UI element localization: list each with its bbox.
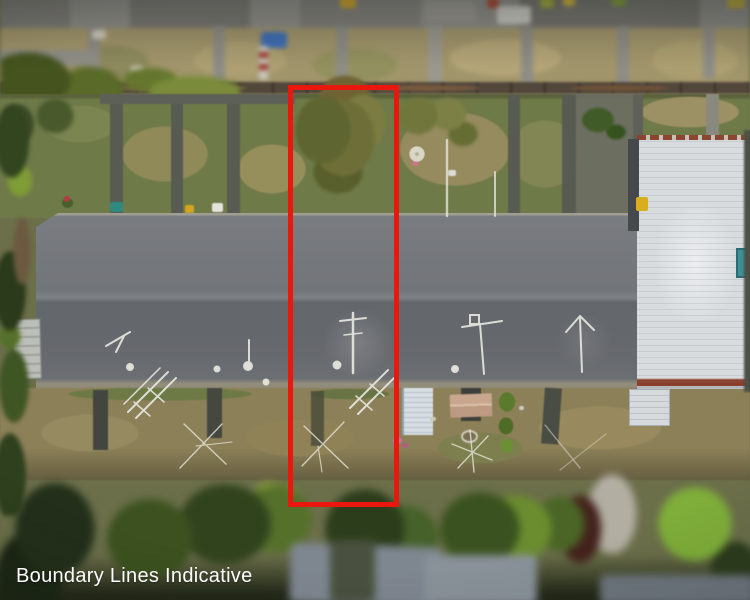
- front-path: [207, 388, 222, 438]
- front-path: [93, 390, 108, 450]
- watermark-label: Boundary Lines Indicative: [16, 565, 253, 588]
- backyard-path: [110, 94, 123, 218]
- backyard-path: [508, 94, 520, 218]
- backyard-path: [227, 94, 240, 218]
- neighbour-roof-bottom: [600, 575, 750, 600]
- street-object: [540, 0, 554, 8]
- roof-shadow: [330, 540, 375, 600]
- neighbour-roof-bottom: [425, 555, 537, 600]
- fire-pit: [461, 430, 478, 443]
- right-edge-paving: [744, 130, 750, 392]
- garden-chair: [212, 203, 223, 212]
- parked-car: [424, 0, 476, 22]
- aerial-photo: Boundary Lines Indicative: [0, 0, 750, 600]
- backyard-path: [171, 94, 183, 218]
- boundary-line-overlay: [288, 85, 399, 507]
- garden-object: [430, 417, 436, 421]
- street-object: [727, 0, 745, 8]
- building-side-shadow: [628, 139, 639, 231]
- flower-pink: [412, 160, 419, 166]
- white-roof-building: [637, 135, 747, 389]
- garden-shed-roof: [450, 393, 493, 417]
- roof-trim: [637, 135, 747, 140]
- garden-object: [519, 406, 524, 410]
- bush: [572, 100, 632, 146]
- garden-object: [448, 170, 456, 176]
- street-object: [340, 0, 356, 8]
- backyard-path: [100, 94, 295, 104]
- tree-canopy: [393, 86, 493, 156]
- yellow-object: [636, 197, 648, 211]
- carport-roof: [402, 388, 433, 435]
- front-path: [541, 387, 562, 444]
- storage-box: [110, 202, 123, 212]
- yellow-bin: [185, 205, 194, 213]
- street-object: [563, 0, 575, 6]
- porch-roof: [629, 389, 670, 426]
- backyard-path: [706, 94, 719, 139]
- street-object: [612, 0, 626, 6]
- flower-red: [64, 196, 70, 202]
